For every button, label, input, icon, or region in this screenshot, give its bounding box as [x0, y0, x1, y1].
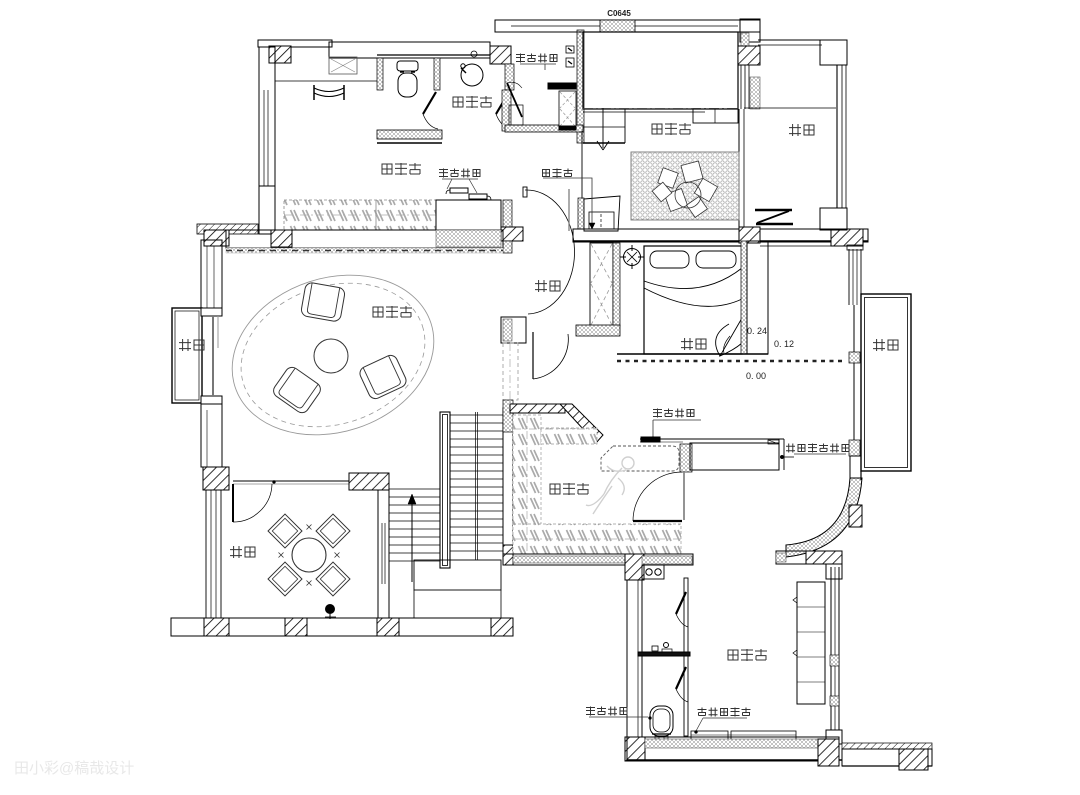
- svg-text:0. 24: 0. 24: [747, 326, 767, 336]
- svg-text:田小彩@稿哉设计: 田小彩@稿哉设计: [14, 760, 134, 777]
- svg-text:0. 12: 0. 12: [774, 339, 794, 349]
- svg-text:C0645: C0645: [607, 9, 631, 18]
- svg-text:0. 00: 0. 00: [746, 371, 766, 381]
